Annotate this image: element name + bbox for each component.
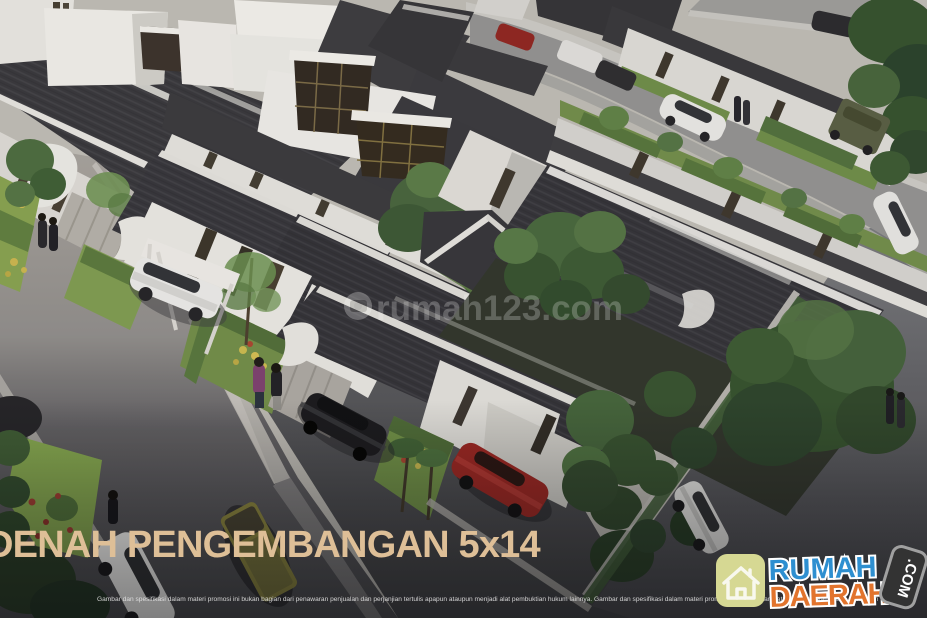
svg-text:DENAH PENGEMBANGAN 5x14: DENAH PENGEMBANGAN 5x14 <box>0 524 540 566</box>
svg-text:DAERAH: DAERAH <box>769 578 888 614</box>
